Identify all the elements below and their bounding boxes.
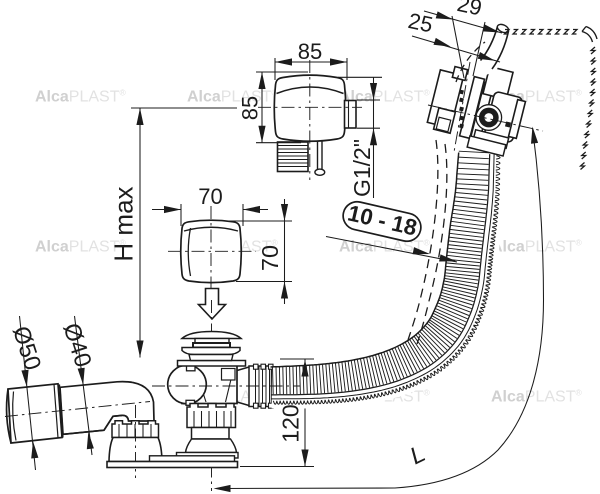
svg-text:85: 85: [238, 96, 263, 120]
svg-text:70: 70: [257, 245, 283, 271]
svg-text:G1/2": G1/2": [349, 139, 375, 197]
svg-text:AlcaPLAST®: AlcaPLAST®: [491, 238, 582, 256]
svg-text:120: 120: [278, 404, 304, 442]
svg-text:70: 70: [198, 184, 222, 209]
svg-text:AlcaPLAST®: AlcaPLAST®: [187, 88, 278, 106]
svg-text:AlcaPLAST®: AlcaPLAST®: [491, 388, 582, 406]
svg-text:H max: H max: [109, 186, 139, 261]
svg-text:25: 25: [406, 8, 435, 38]
svg-text:AlcaPLAST®: AlcaPLAST®: [35, 88, 126, 106]
svg-text:85: 85: [298, 39, 322, 64]
